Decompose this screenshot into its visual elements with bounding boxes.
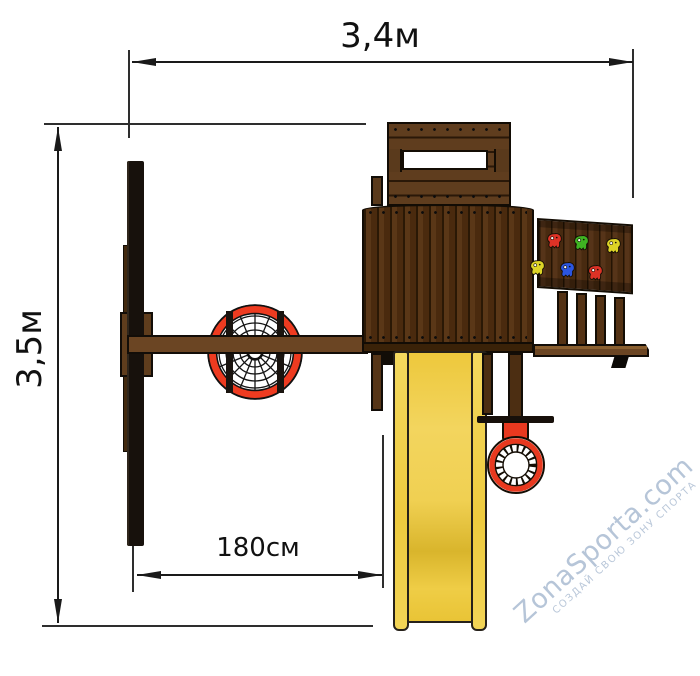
screw-dots — [394, 195, 504, 198]
fence-slat — [614, 297, 625, 352]
climbing-hold-red — [587, 259, 604, 287]
gym-ring — [486, 435, 546, 495]
watermark-tagline: СОЗДАЙ СВОЮ ЗОНУ СПОРТА — [551, 473, 700, 616]
window-post-left — [389, 149, 402, 172]
climbing-hold-yellow — [605, 232, 622, 260]
wall-bottom-rail — [364, 342, 532, 351]
slide-bed — [407, 351, 475, 623]
tower-side-post — [371, 176, 383, 206]
fence-slat — [595, 295, 606, 350]
height-dimension-label: 3,5м — [10, 299, 52, 399]
fence-slat — [576, 293, 587, 348]
climbing-hold-blue — [559, 256, 576, 284]
ring-support-post — [508, 353, 523, 418]
screw-dots — [369, 211, 527, 214]
platform-bracket — [611, 356, 629, 368]
tower-leg-left — [371, 353, 383, 411]
dimension-arrow-width — [132, 61, 633, 63]
tower-back-panel — [387, 122, 511, 206]
climbing-hold-green — [573, 229, 590, 257]
offset-dimension-label: 180см — [203, 533, 313, 563]
tower-leg-mid — [482, 353, 493, 415]
playground-dimension-diagram: 3,4м 3,5м 180см — [0, 0, 700, 676]
screw-dots — [369, 336, 527, 339]
screw-dots — [394, 128, 504, 131]
extension-line-offset-right — [382, 435, 384, 588]
climbing-hold-red — [546, 227, 563, 255]
dimension-arrow-height — [57, 127, 59, 623]
tower-window — [402, 150, 488, 170]
width-dimension-label: 3,4м — [330, 16, 430, 56]
platform-beam — [533, 344, 649, 357]
extension-line-width-right — [632, 49, 634, 198]
swing-beam — [127, 335, 368, 354]
window-post-right — [494, 149, 509, 172]
fence-slat — [557, 291, 568, 346]
dimension-arrow-offset — [137, 574, 382, 576]
ground-line — [42, 625, 373, 627]
extension-line-offset-left — [132, 543, 134, 592]
tower-wall — [362, 204, 534, 353]
climbing-hold-yellow — [529, 254, 546, 282]
extension-line-height-top — [44, 123, 366, 125]
